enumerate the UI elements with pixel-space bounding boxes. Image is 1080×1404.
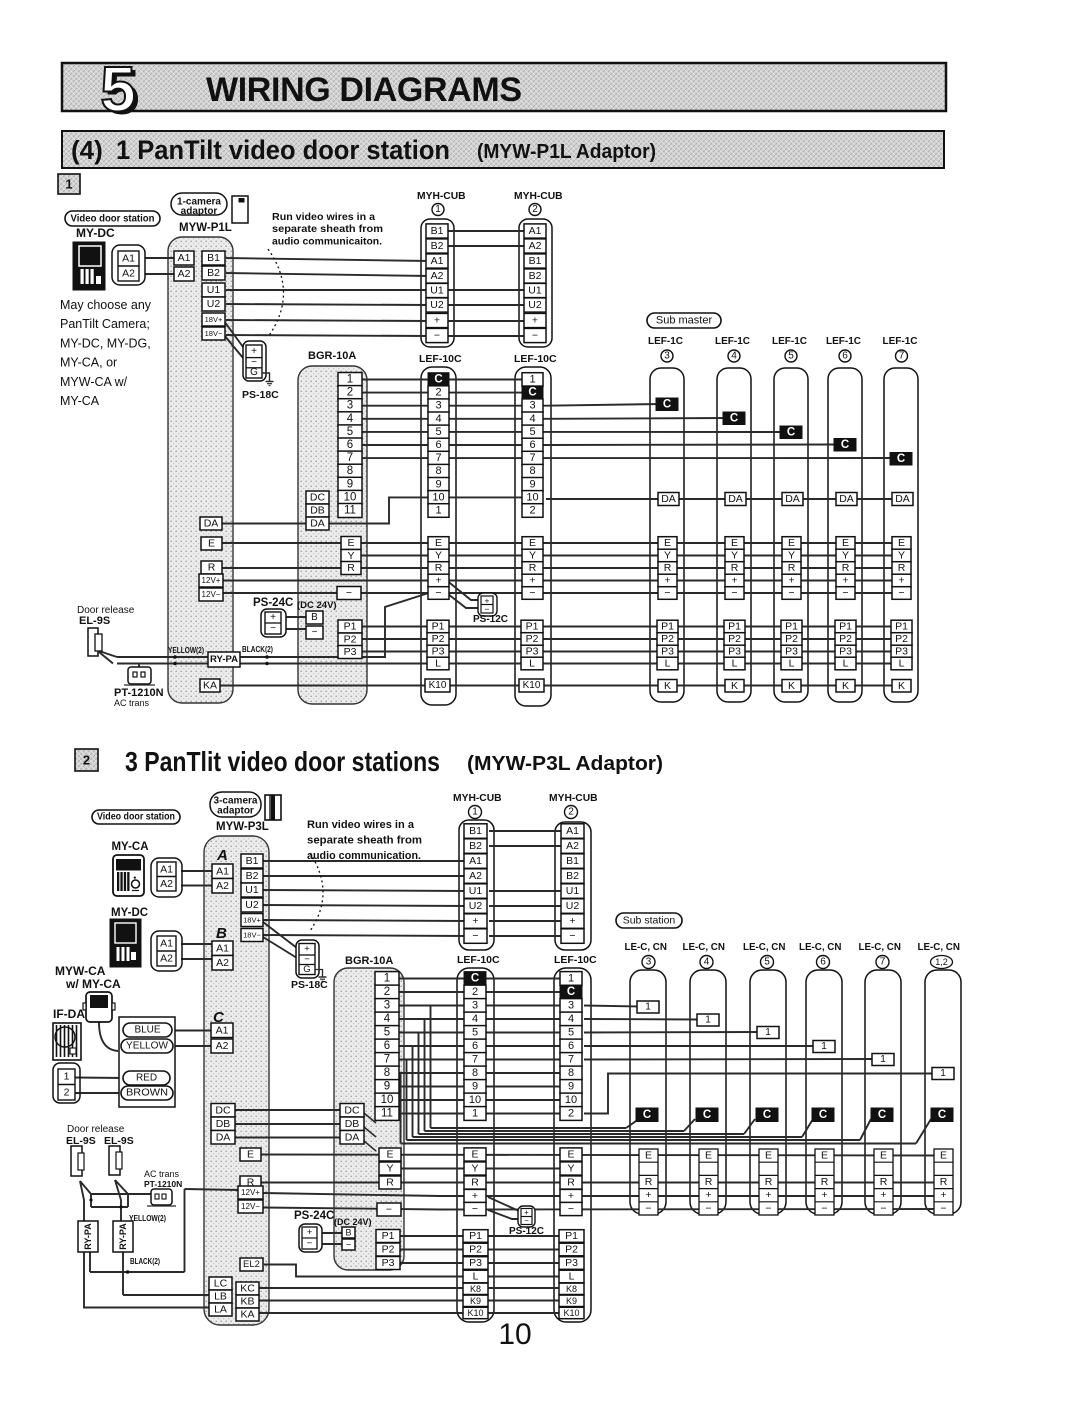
svg-text:+: + [569, 915, 575, 927]
svg-text:P3: P3 [344, 646, 357, 658]
svg-text:−: − [731, 587, 737, 599]
svg-text:A1: A1 [431, 255, 444, 267]
svg-text:LEF-10C: LEF-10C [457, 954, 500, 966]
svg-text:B1: B1 [207, 252, 220, 264]
svg-text:−: − [270, 623, 276, 634]
svg-text:K: K [898, 680, 905, 692]
svg-text:K10: K10 [429, 680, 447, 691]
svg-text:−: − [346, 587, 352, 599]
svg-text:B2: B2 [469, 840, 482, 852]
svg-text:R: R [529, 562, 537, 574]
svg-text:1: 1 [472, 1108, 478, 1120]
svg-text:−: − [569, 930, 575, 942]
svg-text:−: − [434, 330, 440, 342]
svg-text:P1: P1 [526, 621, 539, 633]
svg-text:DC: DC [310, 492, 326, 504]
svg-text:A2: A2 [160, 953, 173, 965]
svg-text:3: 3 [646, 957, 652, 968]
svg-text:P1: P1 [344, 621, 357, 633]
svg-text:A2: A2 [529, 240, 542, 252]
svg-text:5: 5 [100, 53, 136, 125]
svg-text:A2: A2 [469, 870, 482, 882]
svg-text:B: B [216, 925, 227, 942]
svg-text:A1: A1 [216, 942, 229, 954]
svg-text:4: 4 [435, 413, 441, 425]
svg-text:LEF-1C: LEF-1C [772, 336, 807, 347]
svg-text:−: − [880, 1202, 886, 1214]
svg-text:6: 6 [472, 1040, 478, 1052]
svg-text:WIRING DIAGRAMS: WIRING DIAGRAMS [206, 71, 522, 109]
svg-text:2: 2 [347, 387, 353, 399]
svg-text:−: − [386, 1204, 392, 1216]
svg-text:12V+: 12V+ [241, 1188, 260, 1197]
svg-text:Y: Y [842, 550, 849, 562]
svg-text:LA: LA [214, 1304, 227, 1316]
svg-text:adaptor: adaptor [181, 206, 218, 217]
svg-text:7: 7 [472, 1054, 478, 1066]
svg-text:MY-CA: MY-CA [111, 841, 148, 853]
svg-text:E: E [208, 538, 215, 550]
svg-text:+: + [765, 1189, 771, 1201]
svg-text:DC: DC [344, 1104, 360, 1116]
svg-text:+: + [880, 1189, 886, 1201]
svg-text:L: L [789, 658, 795, 670]
svg-text:−: − [312, 627, 318, 638]
svg-text:R: R [765, 1176, 773, 1188]
svg-text:P2: P2 [895, 633, 908, 645]
svg-text:+: + [251, 346, 257, 357]
svg-text:9: 9 [529, 478, 535, 490]
svg-text:11: 11 [381, 1108, 393, 1120]
svg-text:KA: KA [240, 1309, 254, 1321]
svg-text:B1: B1 [431, 225, 444, 237]
svg-text:YELLOW: YELLOW [126, 1041, 169, 1052]
svg-text:K8: K8 [470, 1284, 481, 1294]
svg-text:C: C [471, 973, 479, 985]
svg-text:3: 3 [664, 351, 670, 362]
svg-text:3 PanTlit video door stations: 3 PanTlit video door stations [125, 746, 440, 777]
svg-text:B2: B2 [529, 270, 542, 282]
svg-text:−: − [645, 1202, 651, 1214]
svg-text:Y: Y [898, 550, 905, 562]
svg-text:A1: A1 [216, 1024, 229, 1036]
svg-text:DA: DA [661, 493, 676, 505]
svg-text:LEF-1C: LEF-1C [648, 336, 683, 347]
svg-text:LE-C, CN: LE-C, CN [918, 942, 960, 953]
svg-text:E: E [880, 1150, 887, 1162]
svg-text:P2: P2 [728, 633, 741, 645]
svg-text:A1: A1 [122, 253, 135, 265]
svg-text:6: 6 [842, 351, 848, 362]
svg-text:1: 1 [384, 973, 390, 985]
svg-text:2: 2 [532, 204, 538, 215]
svg-text:6: 6 [384, 1040, 390, 1052]
svg-text:C: C [819, 1109, 827, 1121]
svg-text:EL-9S: EL-9S [104, 1135, 134, 1147]
svg-text:P2: P2 [785, 633, 798, 645]
svg-text:E: E [347, 537, 354, 549]
svg-text:AC trans: AC trans [144, 1169, 180, 1179]
svg-text:R: R [386, 1177, 394, 1189]
svg-text:18V+: 18V+ [205, 315, 223, 324]
svg-text:K: K [664, 680, 671, 692]
svg-text:BLACK(2): BLACK(2) [130, 1256, 160, 1266]
svg-text:4: 4 [731, 351, 737, 362]
svg-text:P2: P2 [565, 1244, 578, 1256]
svg-text:3: 3 [347, 400, 353, 412]
svg-text:R: R [645, 1176, 653, 1188]
svg-text:L: L [569, 1271, 575, 1283]
svg-text:B2: B2 [246, 870, 259, 882]
svg-text:A1: A1 [529, 225, 542, 237]
svg-text:DA: DA [728, 493, 743, 505]
svg-text:8: 8 [435, 465, 441, 477]
svg-text:−: − [472, 1203, 478, 1215]
svg-text:RED: RED [136, 1073, 157, 1084]
svg-text:C: C [763, 1109, 771, 1121]
svg-text:+: + [472, 1190, 478, 1202]
svg-text:5: 5 [435, 426, 441, 438]
svg-text:EL-9S: EL-9S [79, 615, 110, 627]
svg-text:1: 1 [880, 1054, 886, 1065]
svg-text:P3: P3 [728, 646, 741, 658]
svg-text:(MYW-P1L Adaptor): (MYW-P1L Adaptor) [477, 140, 656, 163]
svg-text:DA: DA [895, 493, 910, 505]
svg-text:A2: A2 [160, 878, 173, 890]
svg-text:−: − [705, 1202, 711, 1214]
svg-text:G: G [250, 367, 258, 378]
svg-text:K8: K8 [566, 1284, 577, 1294]
svg-text:C: C [730, 412, 738, 424]
svg-text:A2: A2 [566, 840, 579, 852]
svg-text:7: 7 [347, 452, 353, 464]
svg-text:3: 3 [472, 1000, 478, 1012]
svg-text:B1: B1 [469, 825, 482, 837]
svg-text:PS-12C: PS-12C [509, 1226, 544, 1237]
svg-text:L: L [435, 658, 441, 670]
svg-text:C: C [841, 439, 849, 451]
svg-text:2: 2 [384, 986, 390, 998]
svg-text:E: E [435, 537, 442, 549]
svg-text:+: + [940, 1189, 946, 1201]
svg-text:P3: P3 [895, 646, 908, 658]
svg-text:5: 5 [788, 351, 794, 362]
svg-text:K10: K10 [467, 1308, 483, 1318]
svg-text:May choose any: May choose any [60, 298, 152, 312]
svg-text:BLUE: BLUE [134, 1025, 160, 1036]
svg-text:1: 1 [347, 374, 353, 386]
svg-text:18V−: 18V− [205, 329, 223, 338]
svg-text:K10: K10 [523, 680, 541, 691]
svg-text:C: C [938, 1109, 946, 1121]
svg-text:E: E [765, 1150, 772, 1162]
svg-text:−: − [435, 587, 441, 599]
svg-text:E: E [940, 1150, 947, 1162]
svg-text:+: + [788, 575, 794, 587]
svg-text:LEF-1C: LEF-1C [715, 336, 750, 347]
svg-text:P3: P3 [526, 646, 539, 658]
svg-text:10: 10 [381, 1094, 394, 1106]
svg-text:7: 7 [880, 957, 886, 968]
svg-text:LEF-10C: LEF-10C [419, 353, 462, 365]
svg-text:K9: K9 [566, 1296, 577, 1306]
svg-text:−: − [472, 930, 478, 942]
svg-text:5: 5 [529, 426, 535, 438]
svg-text:P2: P2 [432, 633, 445, 645]
svg-text:1: 1 [705, 1015, 711, 1026]
svg-text:−: − [898, 587, 904, 599]
svg-text:R: R [208, 562, 216, 574]
svg-text:YELLOW(2): YELLOW(2) [168, 645, 204, 655]
svg-text:Run video wires in a: Run video wires in a [307, 819, 415, 831]
svg-text:R: R [898, 562, 906, 574]
svg-text:R: R [821, 1176, 829, 1188]
svg-text:6: 6 [435, 439, 441, 451]
svg-text:1: 1 [435, 505, 441, 517]
svg-text:18V−: 18V− [243, 931, 261, 940]
svg-text:PS-12C: PS-12C [473, 614, 508, 625]
svg-text:LEF-1C: LEF-1C [883, 336, 918, 347]
svg-text:R: R [705, 1176, 713, 1188]
svg-text:E: E [731, 537, 738, 549]
svg-text:−: − [788, 587, 794, 599]
svg-text:10: 10 [565, 1094, 577, 1106]
svg-text:A1: A1 [566, 825, 579, 837]
svg-text:(DC 24V): (DC 24V) [297, 600, 337, 611]
svg-text:C: C [663, 398, 671, 410]
svg-text:R: R [471, 1177, 479, 1189]
svg-text:4: 4 [704, 957, 710, 968]
svg-text:8: 8 [472, 1067, 478, 1079]
svg-text:(DC 24V): (DC 24V) [334, 1217, 372, 1227]
svg-text:R: R [940, 1176, 948, 1188]
svg-text:LE-C, CN: LE-C, CN [743, 942, 785, 953]
svg-text:−: − [765, 1202, 771, 1214]
svg-text:Y: Y [347, 550, 354, 562]
svg-text:E: E [529, 537, 536, 549]
svg-text:LE-C, CN: LE-C, CN [799, 942, 841, 953]
svg-text:1: 1 [645, 1002, 651, 1013]
svg-text:+: + [434, 315, 440, 327]
svg-text:K10: K10 [563, 1308, 579, 1318]
svg-text:+: + [842, 575, 848, 587]
svg-text:P3: P3 [661, 646, 674, 658]
svg-text:A2: A2 [122, 268, 135, 280]
svg-text:RY-PA: RY-PA [210, 654, 238, 665]
svg-text:P2: P2 [526, 633, 539, 645]
svg-text:E: E [788, 537, 795, 549]
svg-text:LEF-10C: LEF-10C [514, 353, 557, 365]
svg-text:A2: A2 [178, 268, 191, 280]
svg-text:P3: P3 [432, 646, 445, 658]
svg-text:P1: P1 [432, 621, 445, 633]
svg-text:P2: P2 [469, 1244, 482, 1256]
svg-text:A: A [216, 847, 228, 864]
svg-text:L: L [843, 658, 849, 670]
svg-text:+: + [705, 1189, 711, 1201]
svg-text:P1: P1 [661, 621, 674, 633]
svg-text:LC: LC [214, 1278, 228, 1290]
svg-text:Door release: Door release [67, 1124, 125, 1135]
svg-text:P1: P1 [839, 621, 852, 633]
svg-text:U1: U1 [245, 884, 259, 896]
svg-text:G: G [303, 964, 310, 975]
svg-text:U1: U1 [430, 285, 444, 297]
svg-text:1: 1 [821, 1041, 827, 1052]
svg-text:P3: P3 [382, 1257, 395, 1269]
svg-text:P3: P3 [839, 646, 852, 658]
svg-text:MYW-CA w/: MYW-CA w/ [60, 375, 128, 389]
svg-text:MY-CA: MY-CA [60, 394, 100, 408]
svg-text:K: K [731, 680, 738, 692]
svg-text:DB: DB [310, 505, 325, 517]
svg-text:P2: P2 [661, 633, 674, 645]
svg-text:6: 6 [347, 439, 353, 451]
svg-text:4: 4 [472, 1013, 478, 1025]
svg-text:LEF-1C: LEF-1C [826, 336, 861, 347]
svg-text:C: C [787, 426, 795, 438]
svg-text:L: L [665, 658, 671, 670]
svg-text:−: − [664, 587, 670, 599]
svg-text:8: 8 [384, 1067, 390, 1079]
svg-text:w/ MY-CA: w/ MY-CA [65, 977, 121, 991]
svg-text:adaptor: adaptor [217, 806, 254, 817]
svg-text:Y: Y [529, 550, 536, 562]
svg-text:U1: U1 [469, 885, 483, 897]
svg-text:EL-9S: EL-9S [66, 1135, 96, 1147]
svg-text:10: 10 [344, 491, 357, 503]
svg-text:PanTilt Camera;: PanTilt Camera; [60, 317, 150, 331]
svg-text:PS-24C: PS-24C [294, 1210, 334, 1222]
svg-text:C: C [528, 387, 536, 399]
svg-text:2: 2 [568, 1108, 574, 1120]
svg-text:B1: B1 [529, 255, 542, 267]
svg-text:7: 7 [568, 1054, 574, 1066]
svg-text:BGR-10A: BGR-10A [308, 350, 356, 362]
svg-text:−: − [821, 1202, 827, 1214]
svg-text:Video door station: Video door station [97, 812, 175, 823]
svg-text:MYW-P3L: MYW-P3L [216, 821, 269, 833]
svg-text:4: 4 [347, 413, 354, 425]
svg-text:18V+: 18V+ [243, 916, 261, 925]
svg-text:R: R [842, 562, 850, 574]
svg-text:K9: K9 [470, 1296, 481, 1306]
svg-text:Sub master: Sub master [656, 315, 713, 327]
svg-text:1: 1 [568, 973, 574, 985]
svg-text:1: 1 [529, 374, 535, 386]
svg-text:8: 8 [529, 465, 535, 477]
svg-text:E: E [567, 1149, 574, 1161]
svg-text:E: E [664, 537, 671, 549]
svg-text:−: − [842, 587, 848, 599]
svg-text:E: E [705, 1150, 712, 1162]
svg-text:B2: B2 [566, 870, 579, 882]
svg-text:2: 2 [83, 753, 90, 768]
svg-text:−: − [346, 1240, 351, 1250]
svg-text:12V−: 12V− [241, 1202, 260, 1211]
svg-text:9: 9 [435, 478, 441, 490]
svg-text:3: 3 [568, 1000, 574, 1012]
svg-text:E: E [821, 1150, 828, 1162]
svg-text:3: 3 [384, 1000, 390, 1012]
svg-text:P3: P3 [469, 1257, 482, 1269]
svg-text:MYH-CUB: MYH-CUB [514, 191, 563, 202]
svg-text:E: E [471, 1149, 478, 1161]
svg-text:+: + [304, 944, 310, 955]
svg-text:DA: DA [785, 493, 800, 505]
svg-text:+: + [645, 1189, 651, 1201]
svg-text:12V−: 12V− [202, 590, 221, 599]
svg-text:R: R [788, 562, 796, 574]
svg-text:Y: Y [471, 1163, 478, 1175]
svg-text:PS-18C: PS-18C [291, 979, 328, 991]
svg-text:KA: KA [203, 680, 217, 692]
svg-text:1: 1 [64, 1071, 70, 1083]
svg-text:6: 6 [820, 957, 826, 968]
svg-text:−: − [568, 1203, 574, 1215]
svg-text:4: 4 [568, 1013, 574, 1025]
svg-text:MYH-CUB: MYH-CUB [549, 793, 598, 804]
svg-text:MY-DC: MY-DC [76, 226, 115, 240]
svg-text:(4): (4) [71, 135, 103, 165]
svg-text:RY-PA: RY-PA [118, 1223, 128, 1250]
svg-text:RY-PA: RY-PA [83, 1223, 93, 1250]
svg-text:separate sheath from: separate sheath from [272, 223, 383, 235]
svg-text:Video door station: Video door station [71, 213, 155, 225]
svg-text:2: 2 [64, 1087, 70, 1099]
svg-text:4: 4 [529, 413, 535, 425]
svg-text:A2: A2 [431, 270, 444, 282]
svg-text:E: E [645, 1150, 652, 1162]
svg-text:MYW-P1L: MYW-P1L [179, 222, 232, 234]
svg-text:C: C [434, 374, 442, 386]
svg-text:1: 1 [765, 1027, 771, 1038]
svg-text:+: + [821, 1189, 827, 1201]
svg-text:5: 5 [472, 1027, 478, 1039]
svg-text:L: L [473, 1271, 479, 1283]
svg-text:B2: B2 [431, 240, 444, 252]
svg-text:LE-C, CN: LE-C, CN [683, 942, 725, 953]
svg-text:(MYW-P3L Adaptor): (MYW-P3L Adaptor) [467, 752, 663, 775]
svg-text:P1: P1 [469, 1230, 482, 1242]
svg-text:B2: B2 [207, 267, 220, 279]
svg-text:U1: U1 [566, 885, 580, 897]
svg-text:MY-DC, MY-DG,: MY-DC, MY-DG, [60, 336, 151, 350]
svg-text:7: 7 [384, 1054, 390, 1066]
svg-text:B: B [311, 612, 318, 623]
svg-text:U2: U2 [207, 298, 221, 310]
svg-text:+: + [529, 575, 535, 587]
svg-text:BROWN: BROWN [126, 1088, 168, 1099]
svg-text:P2: P2 [382, 1244, 395, 1256]
svg-text:12V+: 12V+ [202, 576, 221, 585]
svg-text:5: 5 [384, 1027, 390, 1039]
svg-text:BLACK(2): BLACK(2) [242, 644, 273, 654]
svg-text:C: C [567, 986, 575, 998]
svg-text:P3: P3 [565, 1257, 578, 1269]
svg-text:P2: P2 [344, 634, 357, 646]
svg-text:C: C [643, 1109, 651, 1121]
svg-text:−: − [524, 1216, 529, 1225]
svg-text:5: 5 [764, 957, 770, 968]
svg-text:E: E [247, 1149, 254, 1161]
svg-text:R: R [664, 562, 672, 574]
svg-text:A1: A1 [469, 855, 482, 867]
svg-text:L: L [899, 658, 905, 670]
svg-text:Y: Y [567, 1163, 574, 1175]
svg-text:PS-18C: PS-18C [242, 389, 279, 401]
svg-text:Y: Y [664, 550, 671, 562]
